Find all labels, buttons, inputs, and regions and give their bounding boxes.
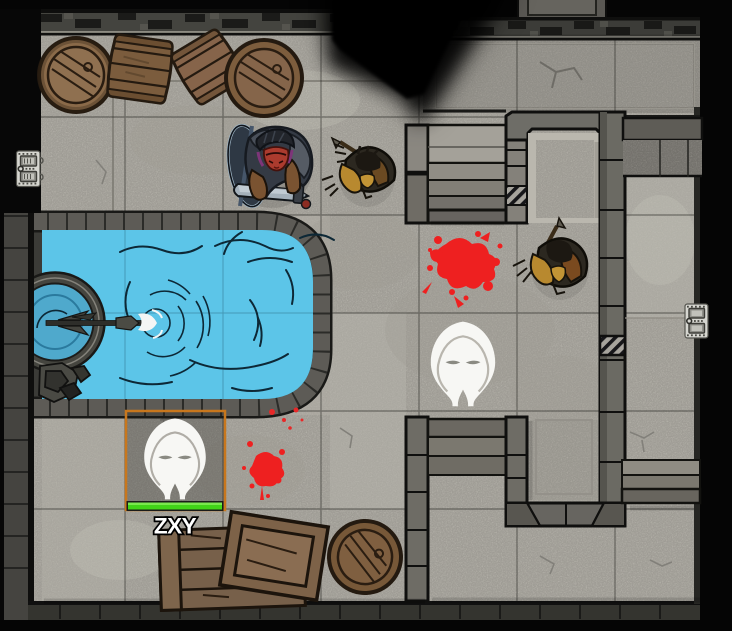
svg-text:ZXY: ZXY	[154, 514, 197, 539]
